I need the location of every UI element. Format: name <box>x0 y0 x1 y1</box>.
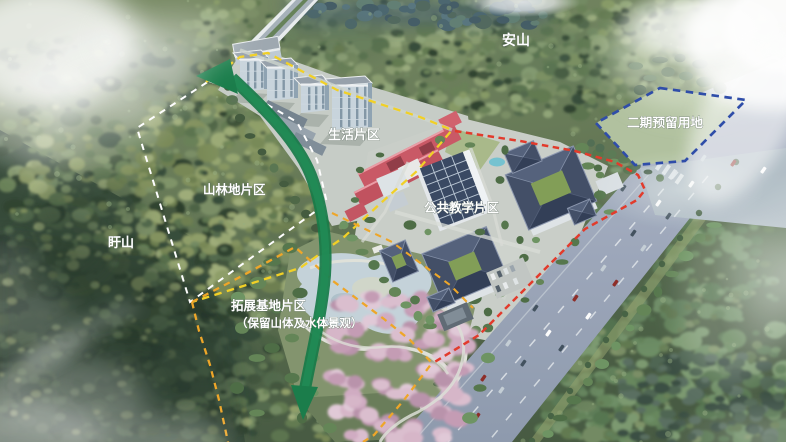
svg-text:生活片区: 生活片区 <box>328 127 380 142</box>
svg-text:公共教学片区: 公共教学片区 <box>424 200 500 215</box>
svg-text:二期预留用地: 二期预留用地 <box>627 115 703 130</box>
svg-text:盱山: 盱山 <box>108 235 134 250</box>
svg-text:山林地片区: 山林地片区 <box>203 182 266 197</box>
svg-text:拓展基地片区: 拓展基地片区 <box>231 298 307 313</box>
svg-text:（保留山体及水体景观）: （保留山体及水体景观） <box>236 316 363 330</box>
svg-text:安山: 安山 <box>502 32 530 48</box>
